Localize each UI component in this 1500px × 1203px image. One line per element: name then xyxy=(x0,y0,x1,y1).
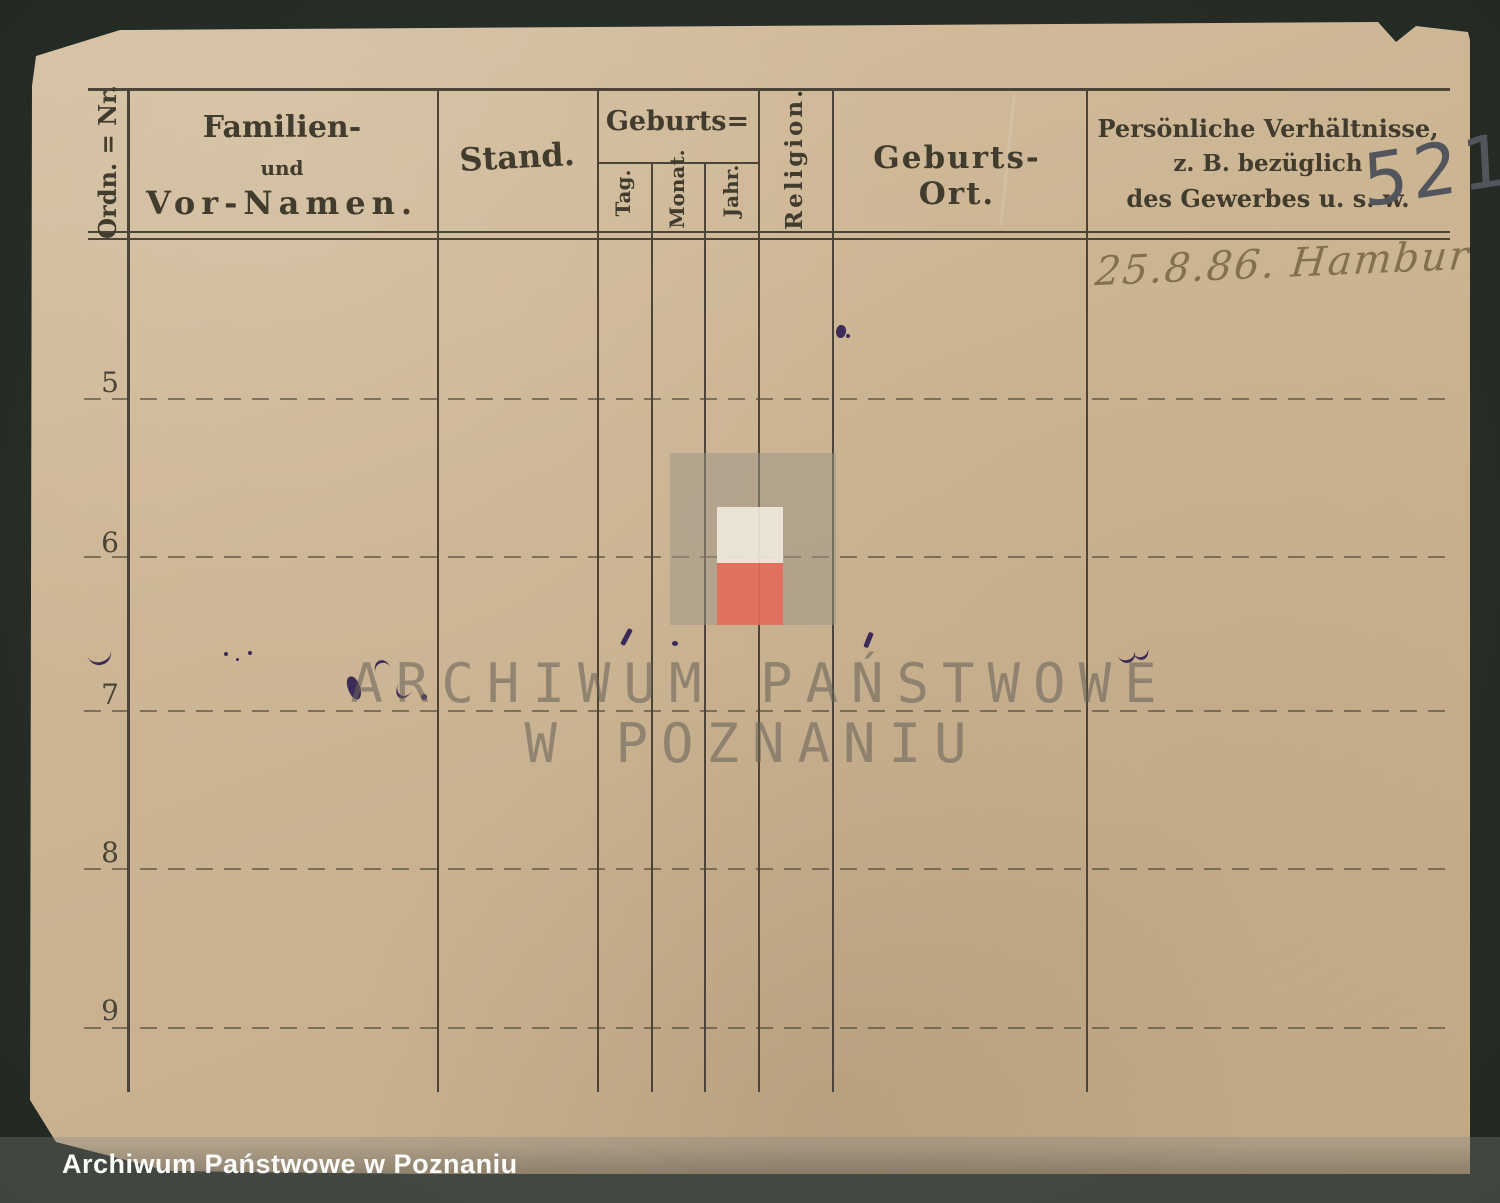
table-top-rule xyxy=(88,88,1450,91)
row-separator-9 xyxy=(84,1027,1452,1029)
header-stand: Stand. xyxy=(416,133,618,181)
header-monat: Monat. xyxy=(664,144,690,234)
credit-bar-label: Archiwum Państwowe w Poznaniu xyxy=(62,1149,518,1180)
watermark-logo-white-square xyxy=(717,507,783,563)
watermark-line1: ARCHIWUM PAŃSTWOWE xyxy=(350,652,1169,715)
row-separator-5 xyxy=(84,398,1452,400)
col-rule-monat xyxy=(704,164,706,1092)
row-number-9: 9 xyxy=(88,994,132,1027)
header-bottom-rule-2 xyxy=(88,238,1450,240)
ink-mark xyxy=(224,652,228,656)
watermark-logo-red-square xyxy=(717,563,783,625)
ink-mark xyxy=(248,651,252,655)
col-rule-geburtsort xyxy=(1086,88,1088,1092)
ink-mark xyxy=(846,334,850,338)
header-geburts: Geburts= xyxy=(597,106,758,137)
header-tag: Tag. xyxy=(610,148,636,238)
row-number-6: 6 xyxy=(88,526,132,559)
row-number-7: 7 xyxy=(88,678,132,711)
col-rule-stand xyxy=(597,88,599,1092)
col-rule-ordnr xyxy=(127,88,130,1092)
col-rule-tag xyxy=(651,164,653,1092)
col-rule-familien xyxy=(437,88,439,1092)
credit-bar-overlay: Archiwum Państwowe w Poznaniu xyxy=(0,1137,1500,1203)
header-jahr: Jahr. xyxy=(718,146,744,236)
ink-mark xyxy=(672,641,678,646)
row-number-5: 5 xyxy=(88,366,132,399)
header-bottom-rule-1 xyxy=(88,231,1450,233)
header-familien-line2: und xyxy=(137,156,427,180)
header-religion: Religion. xyxy=(781,90,809,230)
header-ordnr: Ordn. = Nr. xyxy=(92,82,124,242)
scan-background: Ordn. = Nr. Familien- und Vor-Namen. Sta… xyxy=(0,0,1500,1203)
row-separator-8 xyxy=(84,868,1452,870)
header-geburtsort: Geburts-Ort. xyxy=(857,140,1057,212)
row-number-8: 8 xyxy=(88,836,132,869)
watermark-line2: W POZNANIU xyxy=(524,712,979,775)
header-familien-line1: Familien- xyxy=(137,110,427,145)
header-familien-line3: Vor-Namen. xyxy=(137,184,427,222)
handwritten-entry-note: 25.8.86. Hamburg. xyxy=(1093,231,1500,295)
ink-mark xyxy=(236,658,239,661)
